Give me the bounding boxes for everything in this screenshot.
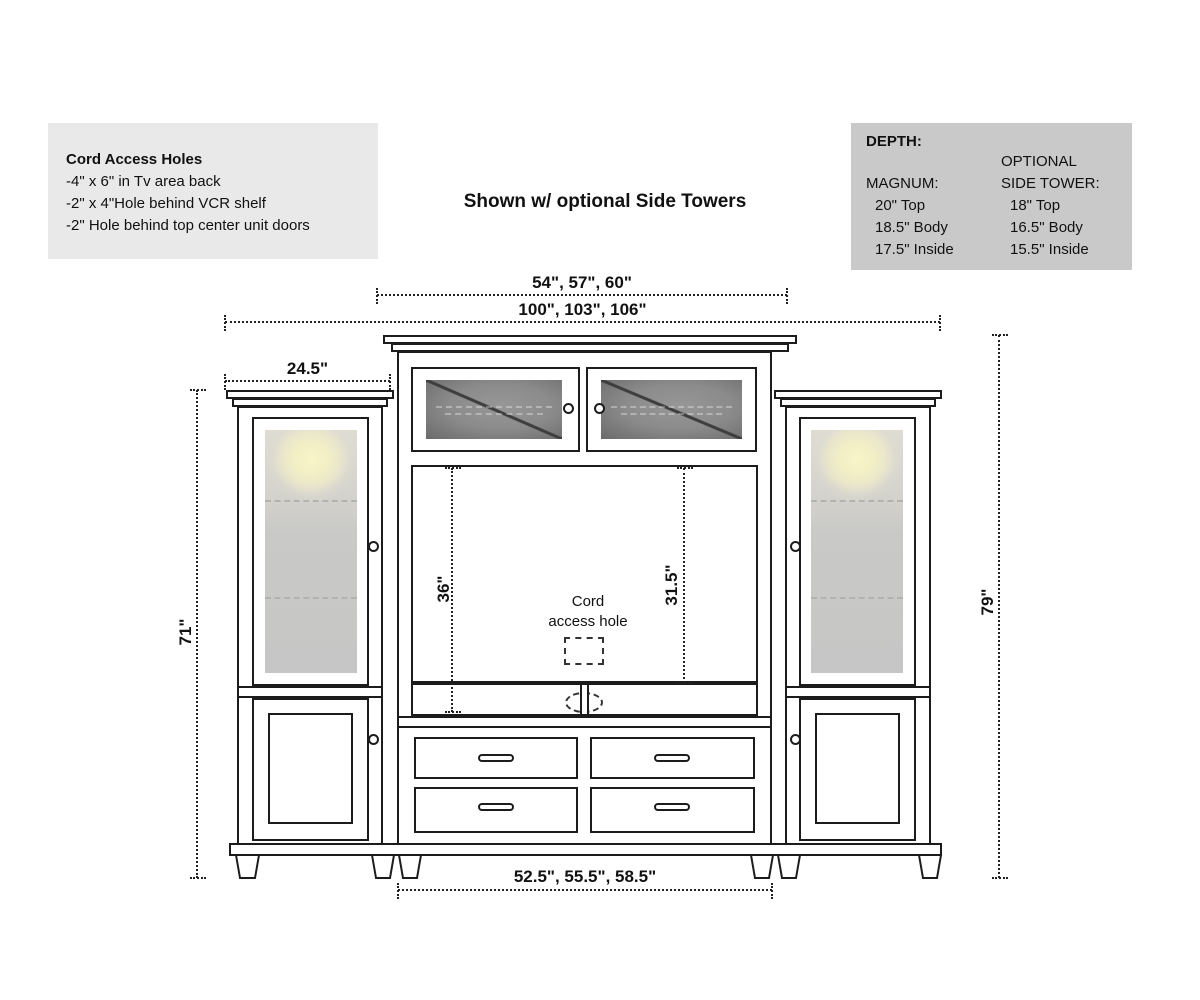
dim-tv-height-right-line (683, 468, 685, 683)
left-tower-glass-pane (265, 430, 357, 673)
cord-access-hole-label: Cord access hole (530, 592, 646, 632)
drawer-handle (478, 754, 514, 762)
depth-spec-box: DEPTH: OPTIONAL MAGNUM: SIDE TOWER: 20" … (851, 123, 1132, 270)
hutch-right-glass (601, 380, 742, 439)
notes-line: -4" x 6" in Tv area back (66, 171, 221, 193)
glass-reflection (445, 413, 543, 415)
glass-shelf-line (811, 500, 903, 502)
drawer-handle (478, 803, 514, 811)
hutch-left-door-knob (563, 403, 574, 414)
dim-tv-height-right-label: 31.5" (663, 559, 681, 611)
drawing-caption: Shown w/ optional Side Towers (430, 191, 780, 213)
notes-line: -2" x 4"Hole behind VCR shelf (66, 193, 266, 215)
glass-shelf-line (265, 500, 357, 502)
side-tower-row: 18" Top (1010, 195, 1060, 217)
dim-side-tower-width-label: 24.5" (225, 360, 390, 378)
dim-side-tower-width-line (225, 380, 390, 382)
side-tower-header-2: SIDE TOWER: (1001, 173, 1100, 195)
hutch-right-door-knob (594, 403, 605, 414)
dim-side-tower-height-line (196, 390, 198, 878)
vcr-shelf-board (397, 716, 772, 728)
drawer-handle (654, 803, 690, 811)
side-tower-header-1: OPTIONAL (1001, 151, 1077, 173)
drawer-handle (654, 754, 690, 762)
dim-top-section-width-label: 54", 57", 60" (377, 274, 787, 292)
side-tower-row: 16.5" Body (1010, 217, 1083, 239)
vcr-center-divider (580, 685, 589, 714)
dim-top-section-width-line (377, 294, 787, 296)
left-tower-lower-door-panel (268, 713, 353, 824)
foot (778, 855, 800, 878)
foot (236, 855, 259, 878)
right-tower-lower-door-knob (790, 734, 801, 745)
right-tower-mid-rail (785, 686, 931, 698)
entertainment-center-spec-sheet: Cord Access Holes -4" x 6" in Tv area ba… (0, 0, 1200, 1000)
dim-overall-width-label: 100", 103", 106" (225, 301, 940, 319)
right-tower-glass-pane (811, 430, 903, 673)
side-tower-row: 15.5" Inside (1010, 239, 1089, 261)
foot (372, 855, 394, 878)
dim-center-unit-width-line (398, 889, 772, 891)
left-tower-mid-rail (237, 686, 383, 698)
dim-center-unit-width-label: 52.5", 55.5", 58.5" (398, 868, 772, 886)
glass-reflection (436, 406, 553, 408)
dim-overall-height-line (998, 335, 1000, 878)
right-tower-lower-door-panel (815, 713, 900, 824)
dim-overall-height-label: 79" (979, 576, 997, 628)
depth-title: DEPTH: (866, 131, 922, 153)
glass-reflection (611, 406, 732, 408)
notes-line: -2" Hole behind top center unit doors (66, 215, 310, 237)
glass-shelf-line (265, 597, 357, 599)
dim-tv-height-left-label: 36" (435, 569, 453, 609)
magnum-row: 17.5" Inside (875, 239, 954, 261)
foot (919, 855, 941, 878)
magnum-header: MAGNUM: (866, 173, 939, 195)
dim-side-tower-height-label: 71" (177, 606, 195, 658)
hutch-left-glass (426, 380, 562, 439)
glass-reflection (621, 413, 723, 415)
cord-access-hole-label-line2: access hole (530, 612, 646, 632)
glass-shelf-line (811, 597, 903, 599)
left-tower-glass-door-knob (368, 541, 379, 552)
left-tower-lower-door-knob (368, 734, 379, 745)
cord-access-hole-label-line1: Cord (530, 592, 646, 612)
magnum-row: 20" Top (875, 195, 925, 217)
cord-access-notes-box: Cord Access Holes -4" x 6" in Tv area ba… (48, 123, 378, 259)
magnum-row: 18.5" Body (875, 217, 948, 239)
cord-access-hole-marker (564, 637, 604, 665)
notes-title: Cord Access Holes (66, 149, 202, 171)
right-tower-glass-door-knob (790, 541, 801, 552)
dim-overall-width-line (225, 321, 940, 323)
